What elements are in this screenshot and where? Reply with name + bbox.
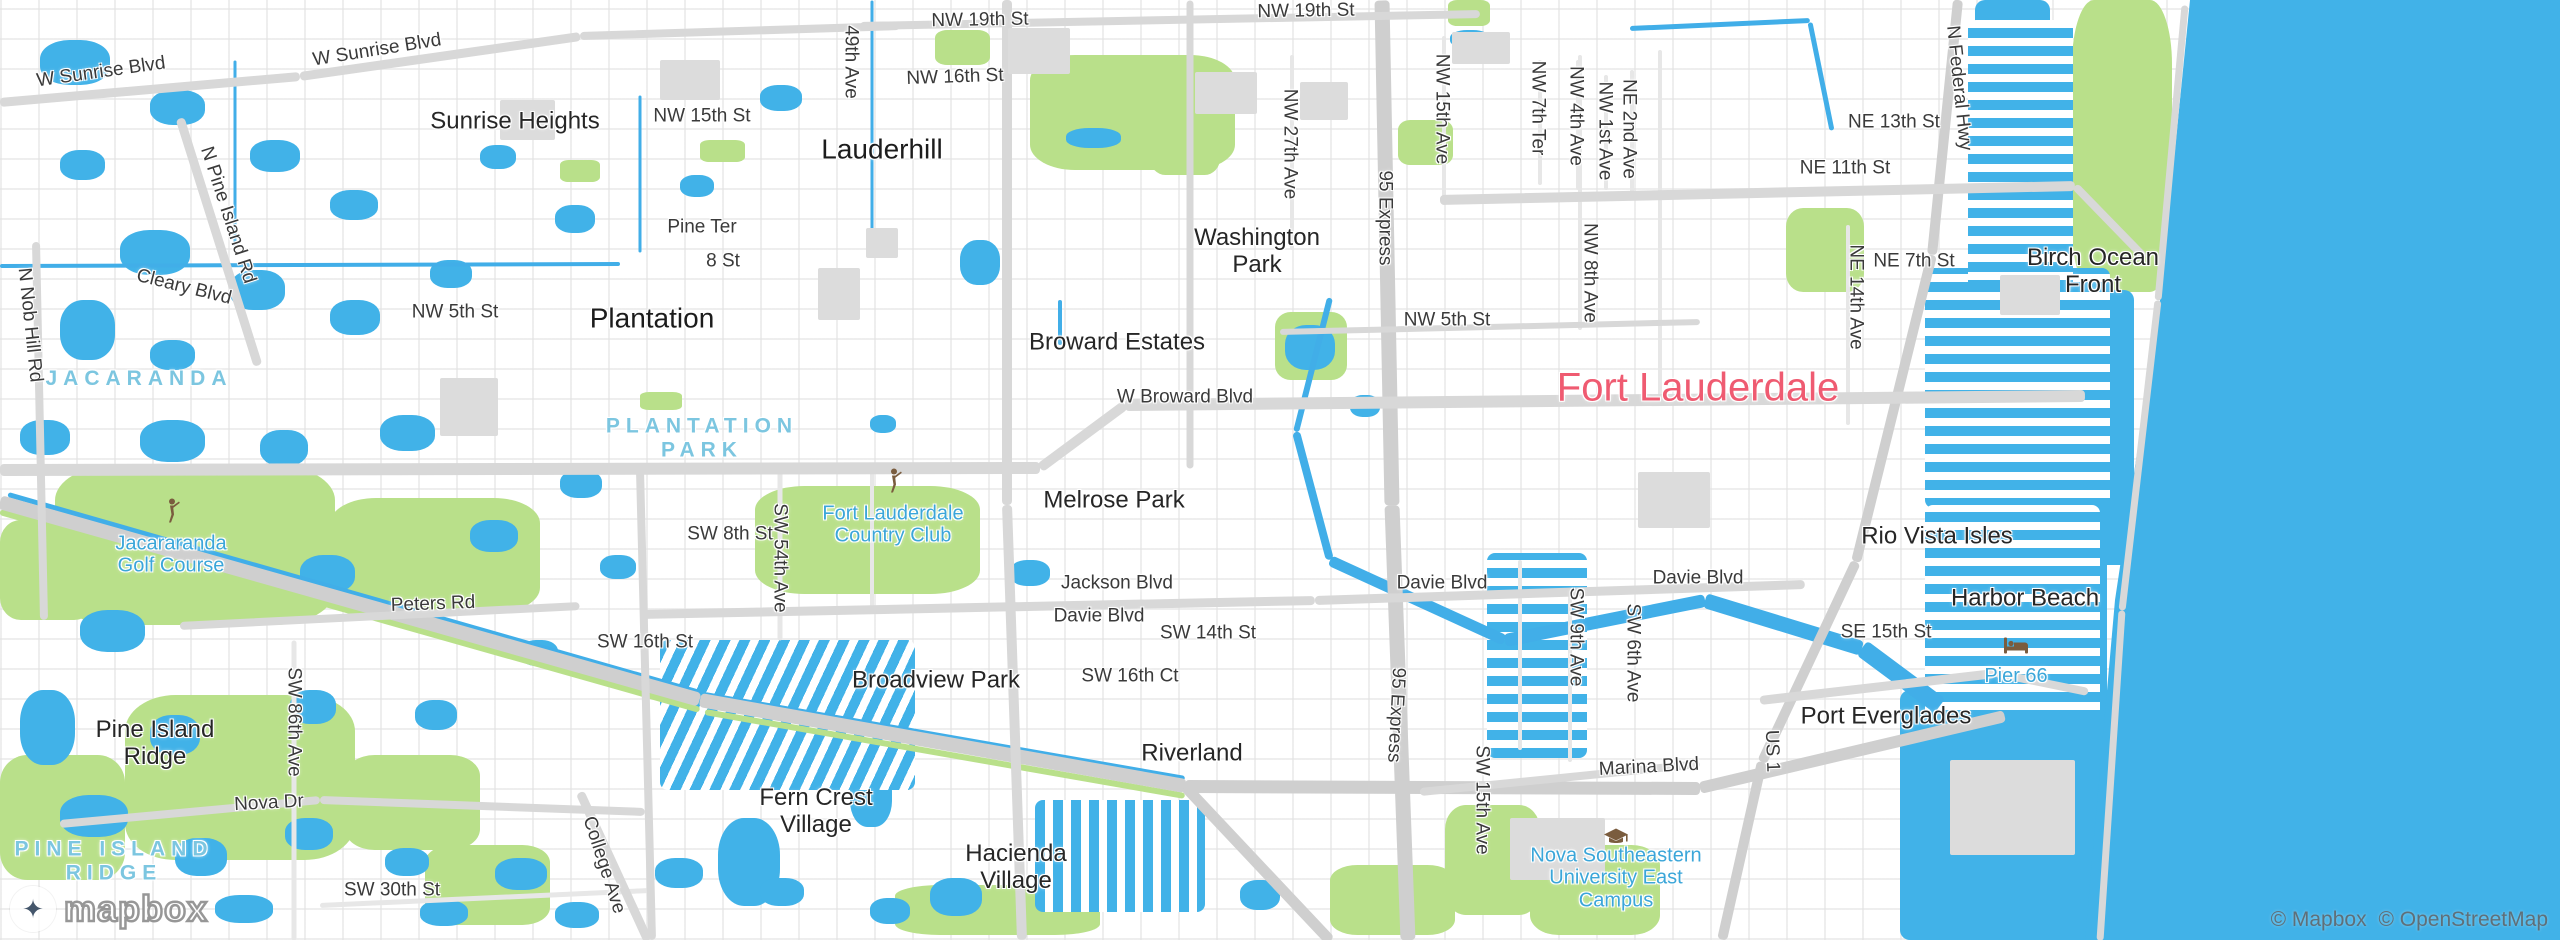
street-label: NW 19th St [931,9,1029,32]
mapbox-logo[interactable]: ✦ mapbox [10,886,208,932]
lake [380,415,435,451]
poi-label: Fort LauderdaleCountry Club [822,503,963,548]
neighborhood-label: Rio Vista Isles [1861,524,2013,551]
street-label: NW 15th St [653,105,750,126]
neighborhood-label: WashingtonPark [1194,225,1320,279]
area-label: PINE ISLANDRIDGE [14,837,213,884]
street-label: Nova Dr [234,791,305,816]
street-label: SW 54th Ave [769,503,790,613]
lake [870,898,910,924]
lake [555,205,595,233]
lake [1066,128,1121,148]
lake [330,300,380,335]
college-icon [1603,828,1629,853]
street-label: Davie Blvd [1653,567,1744,588]
street-label: NE 11th St [1800,157,1890,178]
lake [60,300,115,360]
building [1300,82,1348,120]
mapbox-logo-text: mapbox [64,888,208,930]
neighborhood-label: HaciendaVillage [965,841,1066,895]
neighborhood-label: Broward Estates [1029,330,1205,357]
street-label: NE 14th Ave [1845,244,1866,349]
osm-attribution-link[interactable]: © OpenStreetMap [2378,908,2548,931]
street-label: SW 86th Ave [283,667,304,777]
street-label: NE 13th St [1848,111,1940,132]
park-area [560,160,600,182]
street-label: 95 Express [1374,170,1395,265]
building [1452,32,1510,64]
street-label: SW 15th Ave [1471,745,1492,855]
street-label: Pine Ter [667,216,736,237]
city-label: Fort Lauderdale [1557,366,1839,411]
building [440,378,498,436]
neighborhood-label: Sunrise Heights [430,109,599,136]
street-label: NW 4th Ave [1565,66,1586,166]
street-label: 49th Ave [840,25,861,99]
street-label: Davie Blvd [1054,605,1145,626]
lake [150,340,195,370]
street-label: Jackson Blvd [1061,572,1173,593]
lake [140,420,205,462]
major-road [640,596,1315,619]
lake [420,900,468,926]
map-attribution: © Mapbox © OpenStreetMap [2265,908,2548,932]
area-label: PLANTATIONPARK [606,414,798,461]
lake [20,420,70,455]
neighborhood-label: Broadview Park [852,668,1020,695]
street-label: NW 8th Ave [1579,223,1600,323]
lake [655,858,703,888]
lodging-icon [2003,636,2029,661]
street-label: NW 19th St [1257,0,1355,22]
poi-label: Nova SoutheasternUniversity EastCampus [1530,844,1701,911]
lake [415,700,457,730]
lake [60,150,105,180]
street-label: SE 15th St [1841,621,1932,642]
building [818,268,860,320]
lake [760,878,804,906]
minor-road [1658,50,1662,400]
lake [555,902,599,928]
area-label: JACARANDA [45,367,232,391]
river-canal [1808,22,1835,131]
street-label: Cleary Blvd [134,265,233,309]
lake [495,858,547,890]
street-label: NW 5th St [1404,309,1491,330]
street-label: NW 5th St [412,301,499,322]
building [1950,760,2075,855]
river-canal [1630,18,1810,31]
neighborhood-label: Melrose Park [1043,488,1184,515]
map-canvas[interactable]: W Sunrise BlvdW Sunrise BlvdNW 19th StNW… [0,0,2560,940]
street-label: NW 16th St [906,65,1004,90]
poi-label: Pier 66 [1984,665,2047,687]
lake [20,690,75,765]
major-road [636,470,656,940]
poi-label: JacararandaGolf Course [115,533,226,578]
street-label: NE 2nd Ave [1618,79,1639,179]
street-label: SW 30th St [344,879,440,900]
park-area [640,392,682,410]
golfer-icon [882,468,904,499]
neighborhood-label: Birch OceanFront [2027,245,2159,299]
neighborhood-label: Port Everglades [1801,704,1972,731]
street-label: NW 27th Ave [1279,89,1300,200]
lake [385,848,429,876]
mapbox-attribution-link[interactable]: © Mapbox [2271,908,2367,931]
lake [760,85,802,111]
lake [250,140,300,172]
street-label: NE 7th St [1873,250,1954,271]
golfer-icon [160,498,182,529]
street-label: SW 16th Ct [1081,665,1178,686]
major-road [1037,401,1128,472]
street-label: NW 15th Ave [1431,54,1452,165]
river-canal [0,262,620,268]
river-canal [1292,431,1334,561]
street-label: Peters Rd [390,592,475,616]
park-area [1330,865,1455,935]
building [1638,472,1710,528]
river-canal [871,0,874,240]
lake [80,610,145,652]
lake [680,175,714,197]
street-label: NW 1st Ave [1594,82,1615,181]
building [866,228,898,258]
park-area [935,30,990,65]
park-area [700,140,745,162]
town-label: Plantation [590,302,715,333]
lake [960,240,1000,285]
street-label: College Ave [578,814,629,917]
town-label: Lauderhill [821,133,942,164]
street-label: SW 9th Ave [1565,588,1586,687]
lake [330,190,378,220]
neighborhood-label: Pine IslandRidge [96,717,215,771]
lake [870,415,896,433]
building [1008,28,1070,74]
mapbox-logo-icon: ✦ [10,886,56,932]
lake [470,520,518,552]
street-label: US 1 [1761,730,1784,773]
street-label: 8 St [706,250,740,271]
neighborhood-label: Fern CrestVillage [759,785,872,839]
street-label: NW 7th Ter [1527,61,1548,156]
lake [215,895,273,923]
street-label: Marina Blvd [1598,754,1699,780]
building [660,60,720,100]
lake [1010,560,1050,586]
street-label: SW 14th St [1160,622,1256,643]
street-label: W Broward Blvd [1117,386,1253,407]
lake [260,430,308,466]
building [1195,72,1257,114]
neighborhood-label: Riverland [1141,741,1242,768]
lake [480,145,516,169]
street-label: SW 16th St [597,631,693,652]
neighborhood-label: Harbor Beach [1951,586,2099,613]
street-label: SW 8th St [687,523,773,544]
street-label: SW 6th Ave [1622,604,1643,703]
street-label: Davie Blvd [1397,572,1488,593]
river-canal [639,95,642,252]
lake [600,555,636,579]
